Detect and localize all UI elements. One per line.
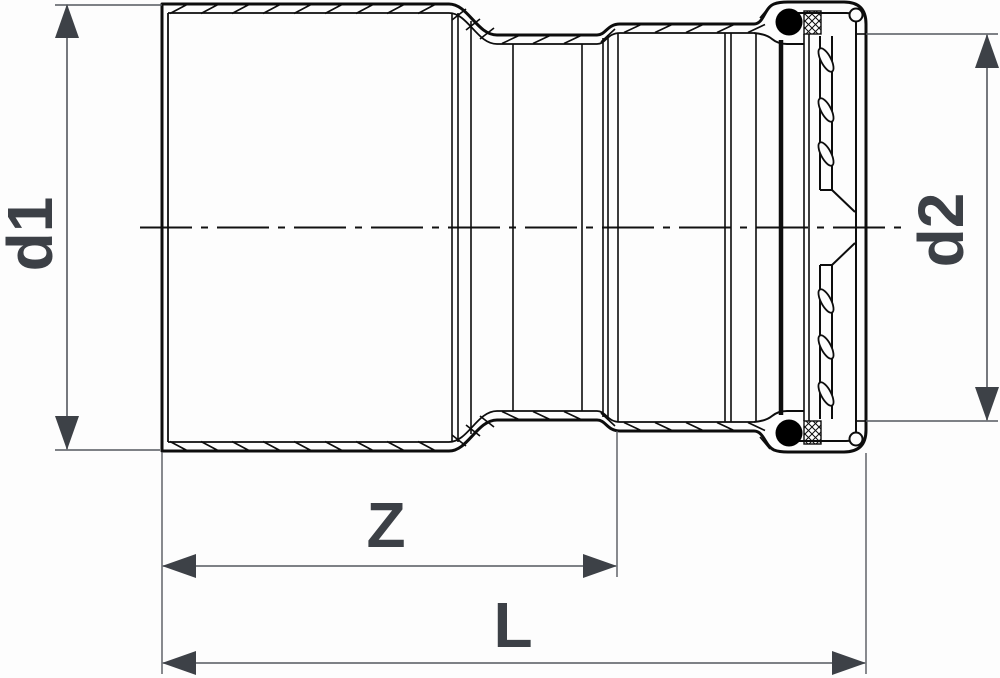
dimension-d2: d2 <box>905 34 999 421</box>
technical-drawing: d1 d2 Z L <box>0 0 1000 678</box>
dimension-l: L <box>162 589 866 675</box>
hatch-tick <box>717 25 734 33</box>
arrow-up-icon <box>55 4 79 38</box>
hatch-tick <box>686 423 703 431</box>
arrow-down-icon <box>55 416 79 450</box>
inner-profile-top <box>168 13 754 44</box>
hatch-tick <box>533 412 550 420</box>
arrow-up-icon <box>975 34 999 68</box>
seal-retainer-bottom <box>804 421 821 444</box>
o-ring-seal-bottom <box>776 420 803 447</box>
dimension-d1: d1 <box>0 4 79 450</box>
hatch-tick <box>748 423 765 431</box>
arrow-right-icon <box>583 554 617 578</box>
arrow-right-icon <box>832 651 866 675</box>
label-d1: d1 <box>0 197 66 272</box>
hatch-tick <box>564 36 581 44</box>
hatch-tick <box>717 423 734 431</box>
o-ring-seal-top <box>776 9 803 36</box>
hatch-tick <box>624 423 641 431</box>
mouth-lip-curl-top <box>850 9 863 22</box>
label-z: Z <box>366 489 405 561</box>
hatch-tick <box>748 25 765 33</box>
label-d2: d2 <box>905 193 977 268</box>
mouth-lip-curl-bottom <box>850 433 863 446</box>
hatch-tick <box>564 412 581 420</box>
dimension-z: Z <box>162 489 617 578</box>
hatch-tick <box>655 423 672 431</box>
arrow-left-icon <box>162 651 196 675</box>
hatch-tick <box>533 36 550 44</box>
arrow-left-icon <box>162 554 196 578</box>
hatch-tick <box>655 25 672 33</box>
hatch-tick <box>502 36 519 44</box>
seal-retainer-top <box>804 11 821 34</box>
inner-profile-bottom <box>168 411 754 442</box>
drawing-canvas: d1 d2 Z L <box>0 0 1000 678</box>
hatch-tick <box>686 25 703 33</box>
arrow-down-icon <box>975 387 999 421</box>
label-l: L <box>493 589 532 661</box>
hatch-tick <box>624 25 641 33</box>
hatch-tick <box>502 412 519 420</box>
